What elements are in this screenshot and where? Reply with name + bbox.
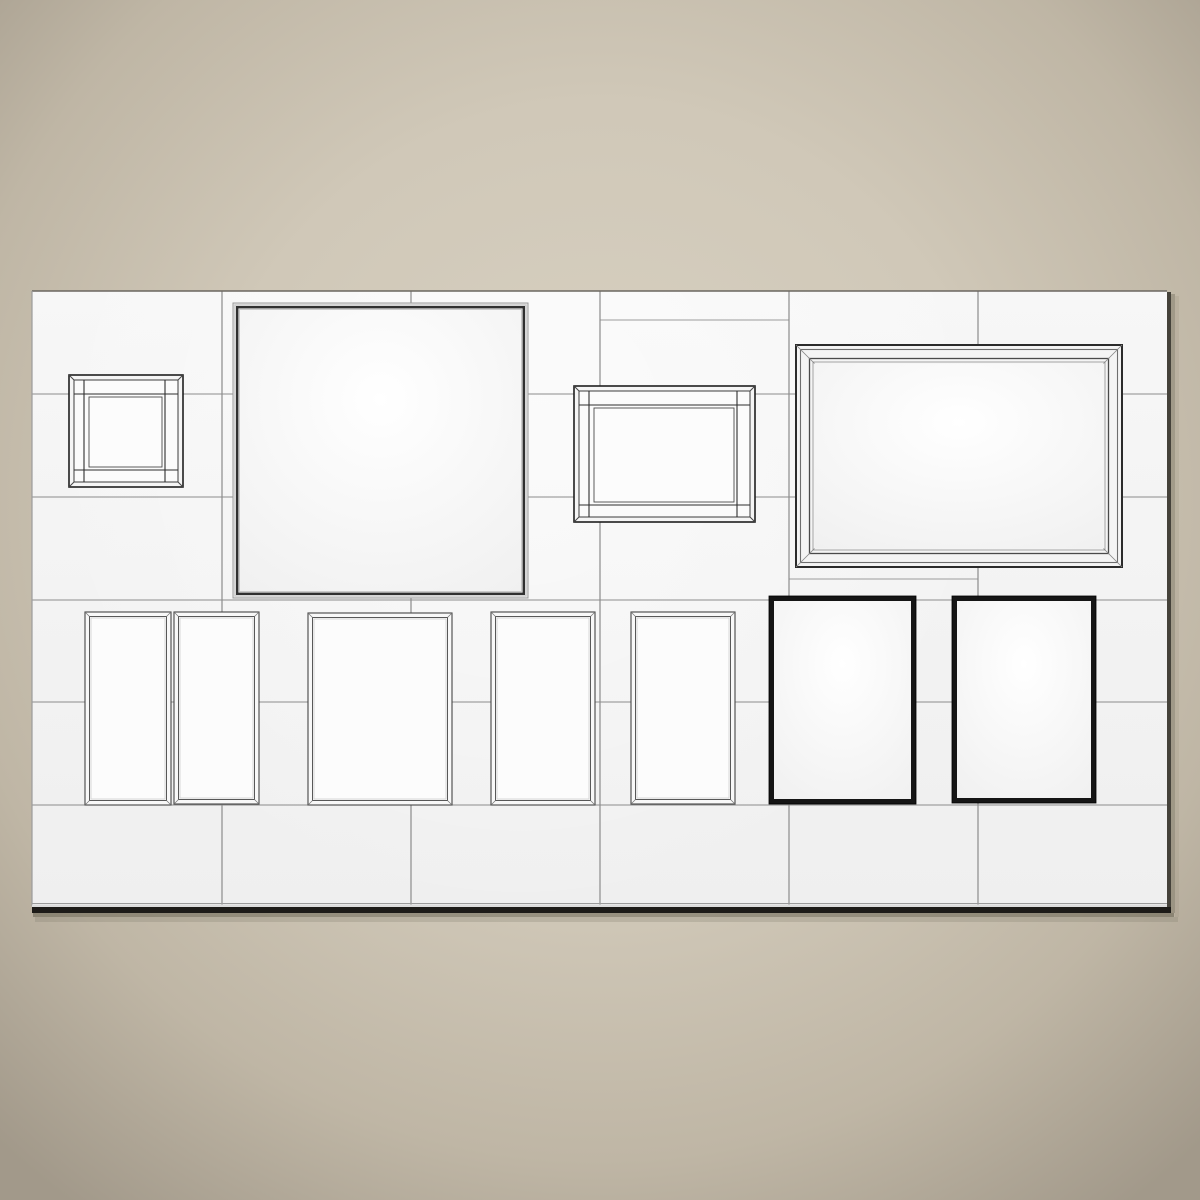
frame-canvas <box>815 364 1104 549</box>
wall-bottom-lip <box>32 905 1167 908</box>
frame-canvas <box>314 619 446 799</box>
frame-canvas <box>774 601 911 799</box>
frame-portrait-3 <box>308 613 452 805</box>
frame-canvas <box>957 601 1091 798</box>
right-shadow-mid <box>1171 294 1175 913</box>
wall-drop-shadow-soft <box>35 917 1178 922</box>
render-stage <box>0 0 1200 1200</box>
right-shadow-soft <box>1175 296 1179 917</box>
frame-slim-portrait-2 <box>174 612 259 804</box>
shadowbox-back-panel <box>89 397 162 467</box>
frame-portrait-4 <box>491 612 595 805</box>
frame-canvas <box>240 310 522 592</box>
wall-render-svg <box>0 0 1200 1200</box>
frame-black-portrait-2 <box>952 596 1096 803</box>
frame-canvas <box>180 618 253 798</box>
frame-landscape-shadowbox <box>574 386 755 522</box>
shadowbox-back-panel <box>594 408 734 502</box>
frame-large-landscape-bevel <box>796 345 1122 567</box>
right-shadow-dark <box>1167 292 1171 909</box>
frame-canvas <box>91 618 165 799</box>
frame-large-square-thin-frame <box>233 303 528 598</box>
frame-small-square-shadowbox <box>69 375 183 487</box>
wall-right-shadow <box>1167 292 1179 917</box>
frame-canvas <box>497 618 589 799</box>
wall-bottom-shadow <box>32 904 1178 923</box>
frame-canvas <box>637 618 729 798</box>
wall-drop-shadow-dark <box>32 907 1171 913</box>
frame-slim-portrait-1 <box>85 612 171 805</box>
frame-black-portrait-1 <box>769 596 916 804</box>
frame-portrait-5 <box>631 612 735 804</box>
wall-drop-shadow-mid <box>33 913 1174 917</box>
